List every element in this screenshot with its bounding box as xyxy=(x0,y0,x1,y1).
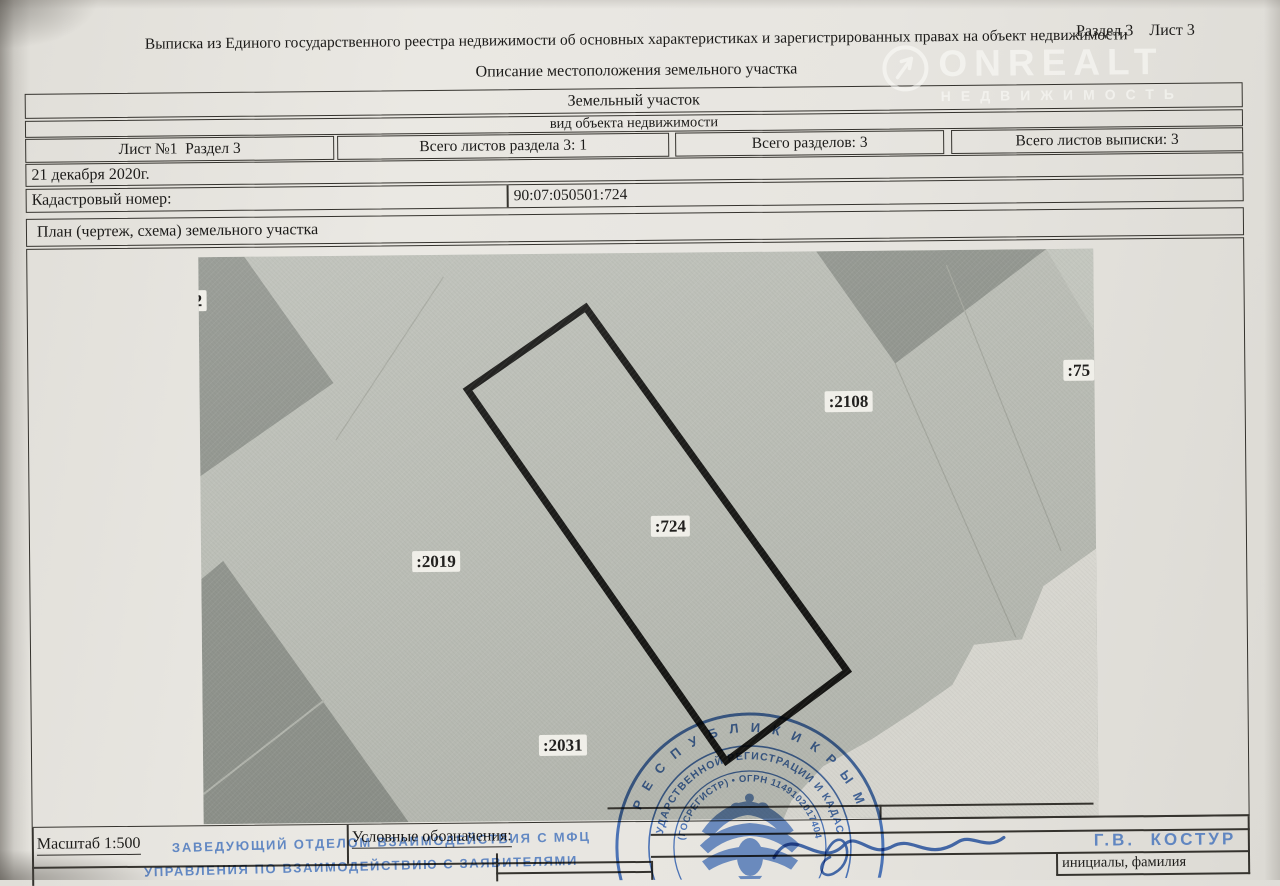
map-label-724: :724 xyxy=(651,516,690,537)
map-label-2108: :2108 xyxy=(825,391,873,412)
grid-line xyxy=(1056,852,1058,875)
document-subtitle: Описание местоположения земельного участ… xyxy=(36,56,1236,86)
object-type-caption: вид объекта недвижимости xyxy=(550,114,718,132)
map-label-75: :75 xyxy=(1063,360,1094,381)
cell-sheet-number: Лист №1 Раздел 3 xyxy=(25,136,334,163)
scale-label: Масштаб 1:500 xyxy=(37,835,141,856)
object-type: Земельный участок xyxy=(568,91,700,109)
table-right-border xyxy=(1248,816,1250,874)
map-label-2031: :2031 xyxy=(539,735,587,756)
handwritten-signature xyxy=(766,811,1017,877)
grid-line xyxy=(1056,872,1250,876)
signature-caption: инициалы, фамилия xyxy=(1062,854,1186,872)
signature-name-stamp: Г.В. КОСТУР xyxy=(1094,829,1237,850)
position-stamp-line2: УПРАВЛЕНИЯ ПО ВЗАИМОДЕЙСТВИЮ С ЗАЯВИТЕЛЯ… xyxy=(144,853,578,880)
document-title: Выписка из Единого государственного реес… xyxy=(46,25,1226,54)
cadastral-divider xyxy=(507,185,509,207)
table-left-border xyxy=(32,828,34,886)
map-label-corner: 2 xyxy=(198,290,206,311)
cadastral-number: 90:07:050501:724 xyxy=(514,184,628,207)
cell-sheets-in-section: Всего листов раздела 3: 1 xyxy=(337,133,669,160)
cell-sections-total: Всего разделов: 3 xyxy=(675,130,944,157)
document-page: Раздел 3 Лист 3 Выписка из Единого госуд… xyxy=(0,0,1280,886)
cadastral-label: Кадастровый номер: xyxy=(32,188,172,211)
cell-sheets-total: Всего листов выписки: 3 xyxy=(951,127,1243,154)
map-label-2019: :2019 xyxy=(412,551,460,572)
